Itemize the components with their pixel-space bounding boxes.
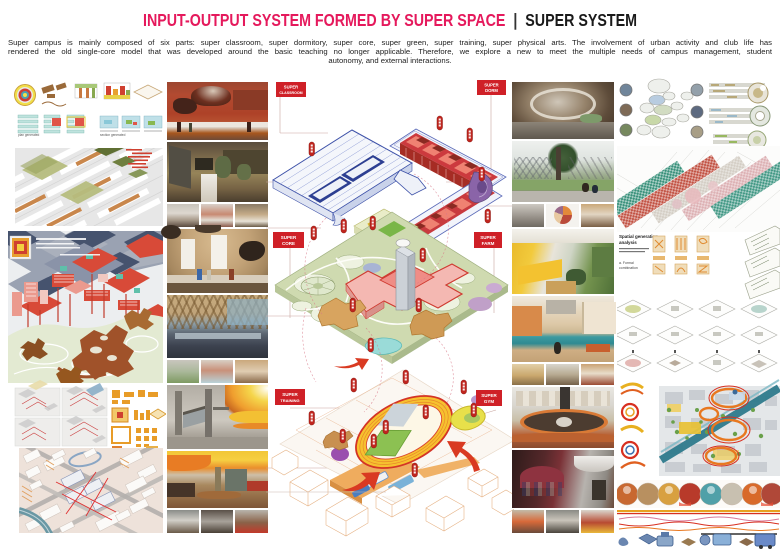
svg-text:SUPER: SUPER: [484, 83, 498, 88]
svg-text:FARM: FARM: [482, 241, 495, 246]
svg-text:SUPER: SUPER: [481, 393, 497, 398]
svg-text:SUPER: SUPER: [284, 85, 298, 90]
svg-text:plan generated: plan generated: [18, 133, 39, 137]
svg-text:SUPER: SUPER: [480, 235, 496, 240]
svg-text:Spatial generation: Spatial generation: [619, 234, 658, 239]
svg-text:analysis: analysis: [619, 240, 637, 245]
svg-text:a. Formal: a. Formal: [619, 261, 634, 265]
svg-text:GYM: GYM: [484, 399, 495, 404]
svg-text:section generated: section generated: [100, 133, 126, 137]
svg-text:SUPER: SUPER: [282, 392, 298, 397]
svg-text:CLASSROOM: CLASSROOM: [279, 91, 302, 95]
svg-text:CORE: CORE: [282, 241, 295, 246]
svg-text:TRAINING: TRAINING: [280, 398, 299, 403]
svg-text:DORM: DORM: [485, 88, 498, 93]
svg-text:combination: combination: [619, 266, 638, 270]
svg-text:SUPER: SUPER: [281, 235, 297, 240]
